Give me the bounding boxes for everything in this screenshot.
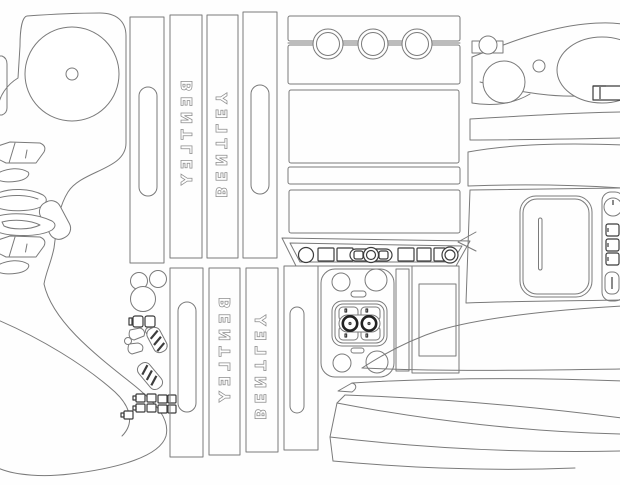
vent-knob-inner xyxy=(406,33,429,56)
switch-button-strip xyxy=(282,238,470,266)
strip-button xyxy=(417,248,431,261)
corner-hole xyxy=(365,269,387,291)
quadrant-tick xyxy=(366,309,368,312)
right-door-panel xyxy=(458,188,620,303)
band-main-mid xyxy=(337,403,620,434)
brand-text-mirrored: BENTLEY xyxy=(178,80,196,190)
small-parts-column xyxy=(121,271,176,420)
band-top-thin-lower xyxy=(352,379,620,383)
handle-insert-pieces xyxy=(0,142,74,274)
quadrant-tick xyxy=(345,309,347,312)
small-hole xyxy=(533,60,545,72)
mirror-switch-ring xyxy=(343,316,357,330)
brand-text-mirrored: BENTLEY xyxy=(251,310,269,420)
corner-hole xyxy=(332,273,350,291)
strip-button xyxy=(398,248,414,261)
pill-notch xyxy=(379,251,388,259)
blade-piece-large xyxy=(0,189,46,210)
door-switch-column xyxy=(602,192,620,301)
strip-slot-cutout-tall xyxy=(178,302,196,412)
brand-text-mirrored: BENTLEY xyxy=(216,297,234,407)
clip-tab xyxy=(129,318,132,325)
frame-panel xyxy=(412,266,459,373)
top-strip-row: BENTLEY BENTLEY xyxy=(130,12,277,263)
hatched-part xyxy=(135,360,165,392)
door-panel-outline xyxy=(466,188,620,303)
clip-part xyxy=(145,316,155,327)
vent-knob-inner xyxy=(362,33,385,56)
quadrant-tick xyxy=(345,334,347,337)
long-strip-lower xyxy=(468,144,620,188)
round-part-large xyxy=(131,287,156,312)
pattern-canvas: BENTLEY BENTLEY BENTLEY BENTLEY xyxy=(0,0,620,485)
door-insert-outer xyxy=(520,196,592,297)
frame-panel-window xyxy=(419,284,456,356)
slot-pill xyxy=(351,348,364,353)
connector-parts xyxy=(121,394,176,419)
right-trim-strips xyxy=(468,112,620,188)
blade-piece-3 xyxy=(0,261,29,274)
pill-notch xyxy=(354,251,363,259)
band-left-taper xyxy=(330,395,345,461)
speaker-center-hole xyxy=(66,68,78,80)
slot-pill xyxy=(351,291,366,297)
latch-block xyxy=(593,86,620,100)
corner-hole xyxy=(333,354,351,372)
wedge-part xyxy=(129,328,144,340)
strip-slot-cutout xyxy=(251,85,269,194)
strip-slot-cutout xyxy=(139,87,157,196)
column-knob xyxy=(604,198,620,216)
quadrant-tick xyxy=(366,334,368,337)
strip-end-button xyxy=(299,248,314,263)
band-top-thin-upper xyxy=(362,368,620,370)
hvac-panel xyxy=(289,190,460,233)
hatched-part xyxy=(145,325,170,355)
edge-sliver-piece xyxy=(0,56,7,115)
wedge-piece-2 xyxy=(0,236,45,257)
mirror-switch-ring xyxy=(362,316,376,330)
dot-part xyxy=(125,338,132,345)
instrument-cluster-surround xyxy=(472,23,620,105)
radio-panel xyxy=(289,90,459,163)
center-stack xyxy=(288,16,460,233)
band-lower-tail xyxy=(333,461,575,469)
blade-piece xyxy=(0,169,29,182)
brand-text-mirrored: BENTLEY xyxy=(212,88,230,198)
long-strip-upper xyxy=(470,112,620,140)
wedge-part xyxy=(128,343,143,354)
dash-kit-drawing: BENTLEY BENTLEY BENTLEY BENTLEY xyxy=(0,0,620,485)
clip-part xyxy=(133,316,143,327)
narrow-trim-strip xyxy=(396,269,409,371)
gauge-circle-opening xyxy=(483,61,525,103)
strip-button xyxy=(318,248,334,261)
wedge-piece xyxy=(0,142,45,163)
band-main-bottom xyxy=(330,437,620,451)
trim-band-panel xyxy=(288,167,460,184)
round-part xyxy=(150,271,167,288)
door-insert-inner xyxy=(523,199,589,294)
strip-center-knob xyxy=(364,248,379,263)
side-panel-inner-seam xyxy=(0,320,130,436)
insert-slot-line xyxy=(539,218,543,270)
window-switch-panel xyxy=(321,269,394,377)
bottom-strip-row: BENTLEY BENTLEY xyxy=(170,266,318,457)
band-left-fold xyxy=(338,383,356,392)
band-transition-curve xyxy=(362,306,620,368)
strip-slot-cutout xyxy=(290,307,304,413)
vent-knob-inner xyxy=(317,33,340,56)
cluster-tab-circle xyxy=(479,36,497,54)
band-main-top xyxy=(345,395,620,418)
